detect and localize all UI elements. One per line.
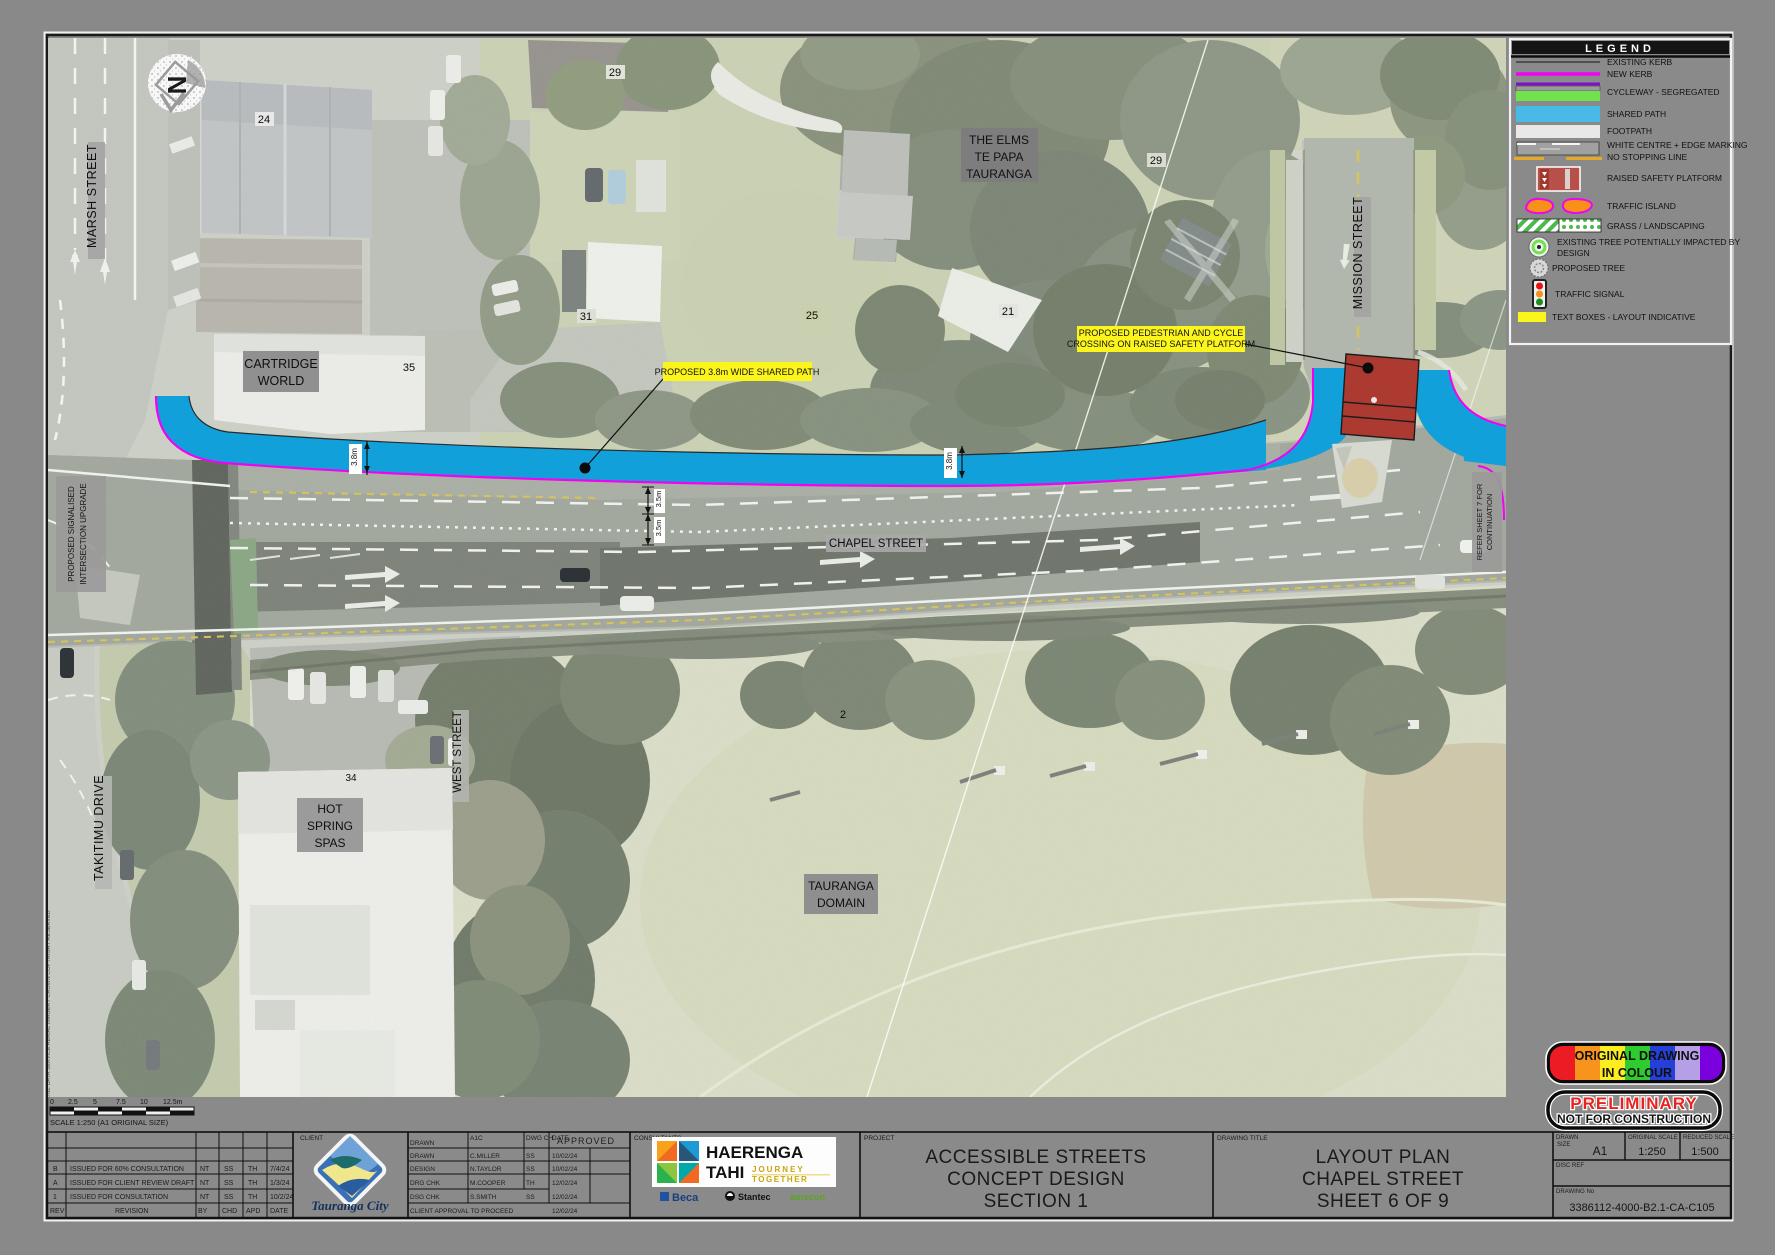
svg-text:INTERSECTION UPGRADE: INTERSECTION UPGRADE [79,483,88,584]
svg-text:NEW KERB: NEW KERB [1607,69,1653,79]
svg-text:N: N [162,76,192,95]
svg-text:Tauranga City: Tauranga City [311,1198,388,1213]
svg-text:10/02/24: 10/02/24 [552,1166,578,1173]
svg-text:3386112-4000-B2.1-CA-C105: 3386112-4000-B2.1-CA-C105 [1569,1202,1714,1214]
svg-text:12/02/24: 12/02/24 [552,1208,578,1215]
svg-text:TRAFFIC ISLAND: TRAFFIC ISLAND [1607,201,1676,211]
svg-text:DRAWN: DRAWN [410,1140,435,1147]
svg-text:A1: A1 [1593,1144,1608,1158]
svg-text:SCALE 1:250 (A1 ORIGINAL SIZE: SCALE 1:250 (A1 ORIGINAL SIZE) [50,1118,169,1127]
svg-text:CYCLEWAY - SEGREGATED: CYCLEWAY - SEGREGATED [1607,87,1720,97]
svg-text:SS: SS [526,1153,535,1160]
svg-text:A: A [53,1180,58,1187]
svg-text:1: 1 [53,1194,57,1201]
svg-text:TH: TH [248,1166,257,1173]
svg-text:ISSUED FOR 60% CONSULTATION: ISSUED FOR 60% CONSULTATION [70,1166,184,1173]
svg-text:PRELIMINARY: PRELIMINARY [1570,1094,1698,1113]
svg-text:SS: SS [224,1194,234,1201]
svg-text:WHITE CENTRE + EDGE MARKING: WHITE CENTRE + EDGE MARKING [1607,140,1748,150]
svg-text:PROJECT: PROJECT [864,1135,894,1142]
svg-text:M.COOPER: M.COOPER [470,1180,506,1187]
svg-text:TOGETHER: TOGETHER [752,1175,808,1184]
svg-text:ORIGINAL DRAWING: ORIGINAL DRAWING [1575,1049,1700,1063]
svg-text:TAHI: TAHI [706,1163,744,1182]
svg-text:3.5m: 3.5m [654,491,663,508]
svg-text:DSG CHK: DSG CHK [410,1194,440,1201]
svg-text:TEXT BOXES - LAYOUT INDICATIVE: TEXT BOXES - LAYOUT INDICATIVE [1552,312,1696,322]
svg-text:10/2/24: 10/2/24 [270,1194,293,1201]
svg-text:1:250: 1:250 [1638,1146,1666,1158]
svg-text:HOT: HOT [317,802,343,816]
svg-text:34: 34 [345,773,357,784]
svg-text:GRASS / LANDSCAPING: GRASS / LANDSCAPING [1607,221,1705,231]
svg-text:APD: APD [246,1208,260,1215]
svg-text:NOT FOR CONSTRUCTION: NOT FOR CONSTRUCTION [1557,1112,1711,1126]
svg-text:REDUCED SCALE: REDUCED SCALE [1683,1135,1734,1141]
svg-text:DISC REF: DISC REF [1556,1163,1584,1169]
svg-text:12/02/24: 12/02/24 [552,1180,578,1187]
svg-text:TAURANGA: TAURANGA [966,167,1032,181]
svg-text:DATE: DATE [270,1208,288,1215]
svg-text:12.5m: 12.5m [163,1099,183,1106]
svg-text:3.8m: 3.8m [350,448,359,466]
svg-text:TE PAPA: TE PAPA [975,150,1024,164]
svg-text:BY: BY [198,1208,208,1215]
svg-text:DRAWN: DRAWN [410,1153,435,1160]
svg-text:2: 2 [840,709,846,721]
svg-text:29: 29 [1150,155,1162,167]
svg-text:CHD: CHD [222,1208,237,1215]
svg-text:CONTINUATION: CONTINUATION [1485,494,1494,551]
svg-text:C.MILLER: C.MILLER [470,1153,500,1160]
svg-text:PROPOSED 3.8m WIDE SHARED PATH: PROPOSED 3.8m WIDE SHARED PATH [655,367,820,377]
svg-text:2.5: 2.5 [68,1099,78,1106]
svg-text:12/02/24: 12/02/24 [552,1194,578,1201]
svg-text:CHAPEL STREET: CHAPEL STREET [829,538,923,550]
svg-text:PROPOSED SIGNALISED: PROPOSED SIGNALISED [67,486,76,582]
svg-text:TH: TH [248,1180,257,1187]
svg-text:EXISTING TREE POTENTIALLY IMPA: EXISTING TREE POTENTIALLY IMPACTED BY [1557,237,1740,247]
svg-text:0: 0 [50,1099,54,1106]
svg-text:TAURANGA: TAURANGA [808,879,874,893]
svg-text:SS: SS [224,1180,234,1187]
svg-text:7.5: 7.5 [116,1099,126,1106]
svg-text:REV: REV [50,1208,65,1215]
svg-text:Stantec: Stantec [738,1192,771,1202]
svg-text:35: 35 [403,362,415,374]
svg-text:CHAPEL STREET: CHAPEL STREET [1302,1169,1464,1190]
svg-text:21: 21 [1002,306,1014,318]
svg-text:24: 24 [258,114,270,126]
svg-text:TRAFFIC SIGNAL: TRAFFIC SIGNAL [1555,289,1625,299]
svg-text:3.5m: 3.5m [654,520,663,537]
svg-text:NT: NT [200,1194,210,1201]
svg-text:PROPOSED PEDESTRIAN AND CYCLE: PROPOSED PEDESTRIAN AND CYCLE [1079,328,1244,338]
svg-text:DWG CH: DWG CH [526,1135,553,1142]
svg-text:FOOTPATH: FOOTPATH [1607,126,1652,136]
svg-text:SPRING: SPRING [307,819,353,833]
svg-text:A1C: A1C [470,1135,483,1142]
svg-text:TH: TH [526,1180,535,1187]
svg-text:LAYOUT PLAN: LAYOUT PLAN [1316,1147,1451,1168]
svg-text:5: 5 [93,1099,97,1106]
svg-text:WEST STREET: WEST STREET [452,711,464,793]
svg-text:1:500: 1:500 [1691,1146,1719,1158]
svg-text:DRAWN: DRAWN [1556,1135,1578,1141]
svg-text:EXISTING KERB: EXISTING KERB [1607,57,1673,67]
svg-text:LEGEND: LEGEND [1585,43,1655,55]
svg-text:REVISION: REVISION [115,1208,148,1215]
svg-text:1/3/24: 1/3/24 [270,1180,290,1187]
svg-text:Beca: Beca [672,1192,699,1204]
svg-text:SECTION 1: SECTION 1 [984,1191,1089,1212]
svg-text:ISSUED FOR CLIENT REVIEW DRAFT: ISSUED FOR CLIENT REVIEW DRAFT [70,1180,195,1187]
svg-text:10/02/24: 10/02/24 [552,1153,578,1160]
svg-text:APPROVED: APPROVED [557,1136,615,1146]
svg-text:HAERENGA: HAERENGA [706,1143,803,1162]
svg-text:DESIGN: DESIGN [1557,248,1590,258]
svg-text:THE ELMS: THE ELMS [969,133,1029,147]
svg-text:ISSUED FOR CONSULTATION: ISSUED FOR CONSULTATION [70,1194,168,1201]
svg-text:3.8m: 3.8m [945,452,954,470]
svg-text:NO STOPPING LINE: NO STOPPING LINE [1607,152,1687,162]
svg-text:SHARED PATH: SHARED PATH [1607,109,1666,119]
svg-text:10: 10 [140,1099,148,1106]
svg-text:MISSION STREET: MISSION STREET [1351,197,1365,310]
svg-text:DESIGN: DESIGN [410,1166,435,1173]
svg-text:TAKITIMU DRIVE: TAKITIMU DRIVE [92,775,106,881]
svg-text:CROSSING ON RAISED SAFETY PLAT: CROSSING ON RAISED SAFETY PLATFORM [1067,339,1255,349]
svg-text:SS: SS [224,1166,234,1173]
svg-text:SPAS: SPAS [314,836,345,850]
svg-text:31: 31 [580,311,592,323]
svg-text:SIZE: SIZE [1557,1142,1570,1148]
svg-text:CONCEPT DESIGN: CONCEPT DESIGN [947,1169,1125,1190]
svg-text:SS: SS [526,1194,535,1201]
svg-text:N.TAYLOR: N.TAYLOR [470,1166,502,1173]
svg-text:CLIENT: CLIENT [300,1135,323,1142]
svg-text:NT: NT [200,1166,210,1173]
svg-text:CLIENT APPROVAL TO PROCEED: CLIENT APPROVAL TO PROCEED [410,1208,514,1215]
svg-text:ACCESSIBLE STREETS: ACCESSIBLE STREETS [925,1147,1146,1168]
svg-text:SHEET 6 OF 9: SHEET 6 OF 9 [1317,1191,1449,1212]
svg-text:29: 29 [609,67,621,79]
svg-text:DRAWING TITLE: DRAWING TITLE [1217,1135,1268,1142]
svg-text:SS: SS [526,1166,535,1173]
svg-text:DRAWING No: DRAWING No [1556,1189,1595,1195]
svg-text:7/4/24: 7/4/24 [270,1166,290,1173]
svg-text:CARTRIDGE: CARTRIDGE [244,357,317,371]
svg-text:PROPOSED TREE: PROPOSED TREE [1552,263,1625,273]
svg-text:TH: TH [248,1194,257,1201]
svg-text:DOMAIN: DOMAIN [817,896,865,910]
svg-text:NT: NT [200,1180,210,1187]
svg-text:ORIGINAL SCALE: ORIGINAL SCALE [1628,1135,1678,1141]
svg-text:IN COLOUR: IN COLOUR [1602,1066,1672,1080]
svg-text:B: B [53,1166,58,1173]
svg-text:RAISED SAFETY PLATFORM: RAISED SAFETY PLATFORM [1607,173,1722,183]
svg-text:REFER SHEET 7 FOR: REFER SHEET 7 FOR [1475,483,1484,560]
svg-text:WORLD: WORLD [258,374,305,388]
svg-text:DRG CHK: DRG CHK [410,1180,441,1187]
svg-text:aurecon: aurecon [790,1192,825,1202]
svg-text:S.SMITH: S.SMITH [470,1194,497,1201]
svg-text:MARSH STREET: MARSH STREET [85,144,99,248]
svg-text:JOURNEY: JOURNEY [752,1165,805,1174]
svg-text:25: 25 [806,310,818,322]
